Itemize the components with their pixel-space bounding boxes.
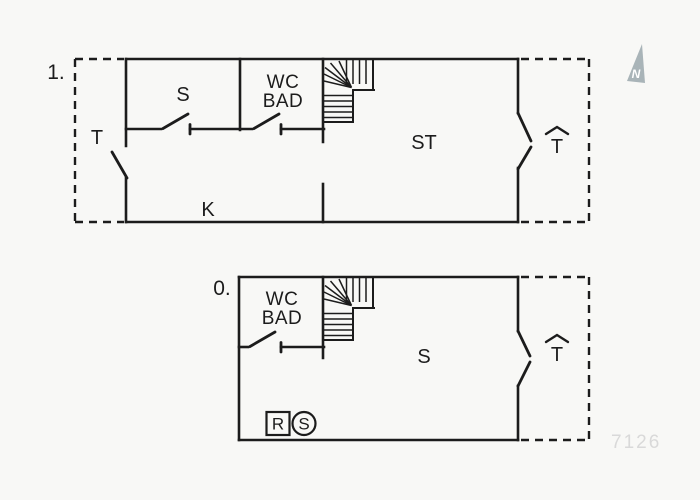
stereo-badge: S (293, 412, 316, 435)
entrance-label: T (91, 127, 103, 149)
room-s-label-ground: S (417, 346, 430, 368)
wc-door-leaf (254, 114, 279, 129)
entrance-door-leaf (112, 152, 127, 178)
radio-badge-letter: R (272, 415, 284, 434)
stair-winder-fan (324, 279, 352, 306)
compass: N (627, 44, 645, 83)
terrace-door-leaf-lower (518, 147, 531, 169)
ground-floor-label: 0. (213, 277, 231, 300)
wc-door-ground (250, 332, 281, 352)
room-s-label-first: S (176, 84, 189, 106)
wc-door-leaf (250, 332, 275, 347)
s-room-door (163, 114, 190, 134)
stair-treads-upper-run (347, 60, 367, 84)
terrace-arrow-chevron (546, 335, 568, 342)
room-st-label: ST (411, 132, 437, 154)
terrace-arrow-chevron (546, 127, 568, 134)
terrace-door-ground (518, 331, 530, 386)
terrace-arrow-letter: T (551, 344, 563, 366)
stair-treads-upper-run (347, 278, 367, 302)
plan-number-watermark: 7126 (611, 432, 661, 453)
terrace-door-leaf-upper (518, 331, 530, 356)
terrace-door-first (518, 113, 531, 169)
stereo-badge-letter: S (298, 415, 309, 434)
stair-treads-lower-run (324, 96, 352, 118)
stair-treads-lower-run (324, 314, 352, 336)
ground-floor-plan: T R S 0. WC BAD S (213, 277, 589, 440)
floor-plan-drawing: T 1. T S WC BAD ST K (0, 0, 700, 500)
staircase-ground (323, 277, 374, 340)
first-floor-plan: T 1. T S WC BAD ST K (47, 59, 589, 222)
wc-label-first-line1: WC (267, 72, 300, 93)
wc-label-first-line2: BAD (263, 91, 304, 112)
wc-label-ground-line2: BAD (262, 308, 303, 329)
terrace-arrow-first: T (546, 127, 568, 158)
terrace-door-leaf-upper (518, 113, 531, 141)
stair-winder-fan (324, 61, 352, 88)
compass-north-label: N (632, 67, 641, 81)
wc-door-first (254, 114, 281, 134)
terrace-arrow-ground: T (546, 335, 568, 366)
s-room-door-leaf (163, 114, 188, 129)
room-k-label: K (201, 199, 215, 221)
floor-plan-page: T 1. T S WC BAD ST K (0, 0, 700, 500)
first-floor-label: 1. (47, 61, 65, 84)
staircase-first (323, 59, 374, 122)
entrance-door (112, 152, 127, 178)
wc-label-ground-line1: WC (266, 289, 299, 310)
radio-badge: R (267, 412, 290, 435)
terrace-door-leaf-lower (518, 362, 530, 386)
terrace-arrow-letter: T (551, 136, 563, 158)
